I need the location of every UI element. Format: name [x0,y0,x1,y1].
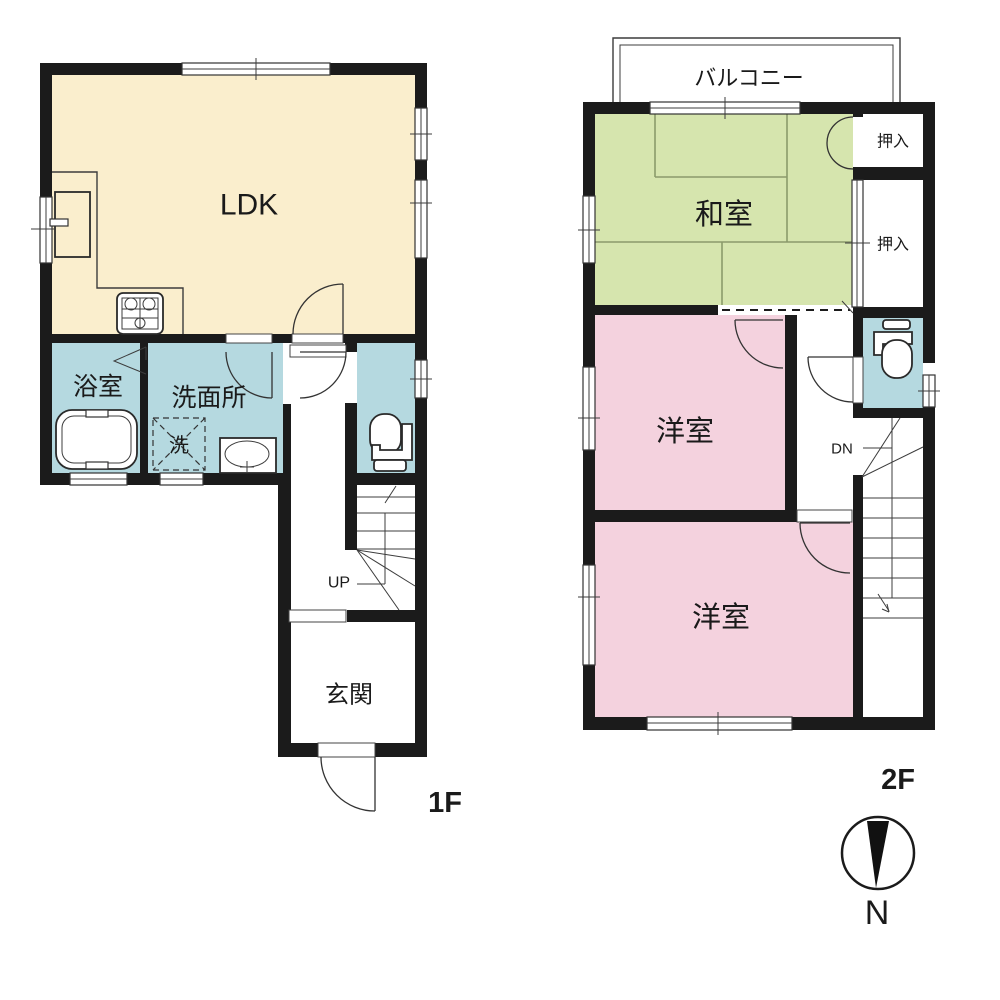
washing-machine-label: 洗 [169,434,189,457]
room-label-japanese: 和室 [695,198,753,231]
floor-label-1f: 1F [428,787,462,819]
window-kitchen-left [31,197,54,263]
room-label-entrance: 玄関 [325,682,373,709]
room-label-ldk: LDK [220,189,278,222]
floor-2f: バルコニー [578,38,940,796]
compass: N [842,817,914,932]
balcony: バルコニー [613,38,900,102]
floor-plan-drawing: 洗 UP LDK [0,0,1000,1000]
window-washroom-bottom [160,473,203,485]
room-label-western-1: 洋室 [656,415,714,448]
stairs-up-label: UP [328,575,350,592]
window-bathroom-bottom [70,473,127,485]
room-label-bathroom: 浴室 [73,373,123,401]
toilet-door-swing-2f [808,357,863,403]
stairs-dn-label: DN [831,441,853,458]
floor-plan-canvas: 洗 UP LDK [0,0,1000,1000]
washbasin-icon [220,438,276,473]
room-label-closet-upper: 押入 [877,133,909,151]
floor-label-2f: 2F [881,764,915,796]
entrance-hall-opening [289,610,346,622]
stove-icon [117,293,163,334]
room-label-washroom: 洗面所 [171,384,246,412]
bathtub-icon [56,410,137,469]
stairs-1f: UP [328,486,415,610]
washroom-door-opening [226,334,272,343]
compass-north-label: N [865,894,890,932]
room-western-1 [595,315,785,510]
ldk-door-opening [292,334,343,343]
room-label-balcony: バルコニー [694,66,804,91]
room-label-closet-lower: 押入 [877,236,909,254]
hallway-door-swing [300,352,346,398]
room-label-western-2: 洋室 [692,601,750,634]
floor-1f: 洗 UP LDK [31,58,462,819]
hallway-door-opening [290,345,346,357]
entrance-door [318,743,375,811]
